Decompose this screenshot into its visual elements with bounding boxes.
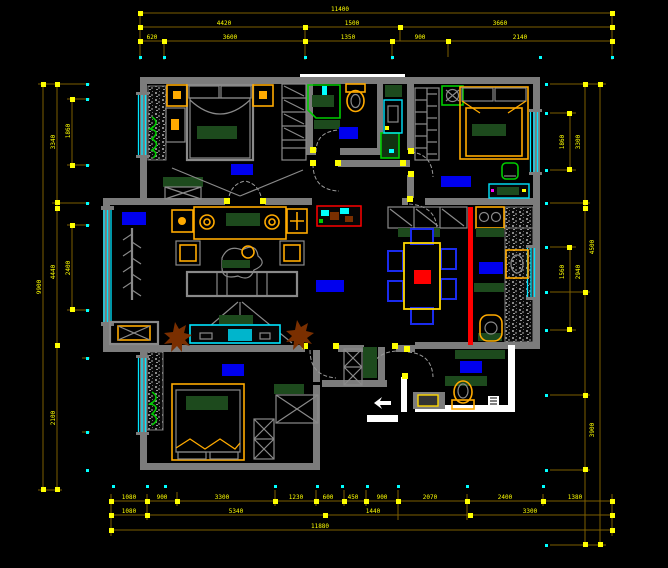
svg-text:1860: 1860	[65, 123, 72, 138]
svg-text:1440: 1440	[366, 508, 381, 515]
svg-text:2400: 2400	[65, 260, 72, 275]
bath-shelf	[314, 120, 340, 129]
rug-bedroom3	[222, 364, 244, 376]
svg-text:3600: 3600	[223, 34, 238, 41]
svg-text:3300: 3300	[575, 134, 582, 149]
washroom-counter	[385, 85, 402, 97]
floor-plan-canvas: 11400 4420 1500 3660 620 3600 1350 900 2…	[0, 0, 668, 568]
laundry-unit	[363, 347, 377, 378]
svg-text:2940: 2940	[575, 264, 582, 279]
sliding-door-red	[468, 207, 473, 345]
svg-text:900: 900	[415, 34, 426, 41]
svg-text:1350: 1350	[341, 34, 356, 41]
rug-bath2	[460, 361, 482, 373]
svg-text:4500: 4500	[589, 239, 596, 254]
rug-living-corner	[122, 212, 146, 225]
rug-hall	[316, 280, 344, 292]
bath2-counter-top	[455, 350, 505, 359]
svg-text:1080: 1080	[122, 508, 137, 515]
svg-text:2100: 2100	[50, 410, 57, 425]
svg-text:1380: 1380	[568, 494, 583, 501]
desk	[489, 184, 529, 198]
svg-text:3340: 3340	[50, 134, 57, 149]
svg-text:600: 600	[323, 494, 334, 501]
threshold	[367, 415, 398, 422]
vanity-sink	[413, 392, 445, 409]
floor-drain	[488, 396, 499, 407]
bench-3	[274, 384, 304, 394]
svg-text:3300: 3300	[215, 494, 230, 501]
svg-text:3900: 3900	[589, 422, 596, 437]
svg-text:2140: 2140	[513, 34, 528, 41]
svg-text:450: 450	[348, 494, 359, 501]
svg-text:1500: 1500	[345, 20, 360, 27]
entry-door	[381, 133, 399, 158]
svg-text:3660: 3660	[493, 20, 508, 27]
svg-text:620: 620	[147, 34, 158, 41]
shoe-cabinet-red	[317, 206, 361, 226]
svg-text:9900: 9900	[36, 279, 43, 294]
svg-text:1560: 1560	[559, 264, 566, 279]
svg-text:3300: 3300	[523, 508, 538, 515]
svg-text:2070: 2070	[423, 494, 438, 501]
svg-text:1230: 1230	[289, 494, 304, 501]
nightstand-right-lamp	[259, 91, 267, 99]
svg-text:5340: 5340	[229, 508, 244, 515]
svg-text:4420: 4420	[217, 20, 232, 27]
svg-text:1080: 1080	[122, 494, 137, 501]
svg-text:900: 900	[377, 494, 388, 501]
svg-text:4440: 4440	[50, 264, 57, 279]
rug-bedroom1	[231, 164, 253, 175]
svg-text:1860: 1860	[559, 134, 566, 149]
rug-bath-top	[339, 127, 358, 139]
nightstand-left-lamp	[173, 91, 181, 99]
svg-text:900: 900	[157, 494, 168, 501]
rug-kitchen	[479, 262, 503, 274]
svg-text:2400: 2400	[498, 494, 513, 501]
rug-bedroom2	[441, 176, 471, 187]
tv-cabinet	[190, 325, 280, 343]
media-shelf	[219, 315, 253, 324]
floor-plan-drawing: 11400 4420 1500 3660 620 3600 1350 900 2…	[0, 0, 668, 568]
svg-text:11880: 11880	[311, 523, 329, 530]
svg-text:11400: 11400	[331, 6, 349, 13]
